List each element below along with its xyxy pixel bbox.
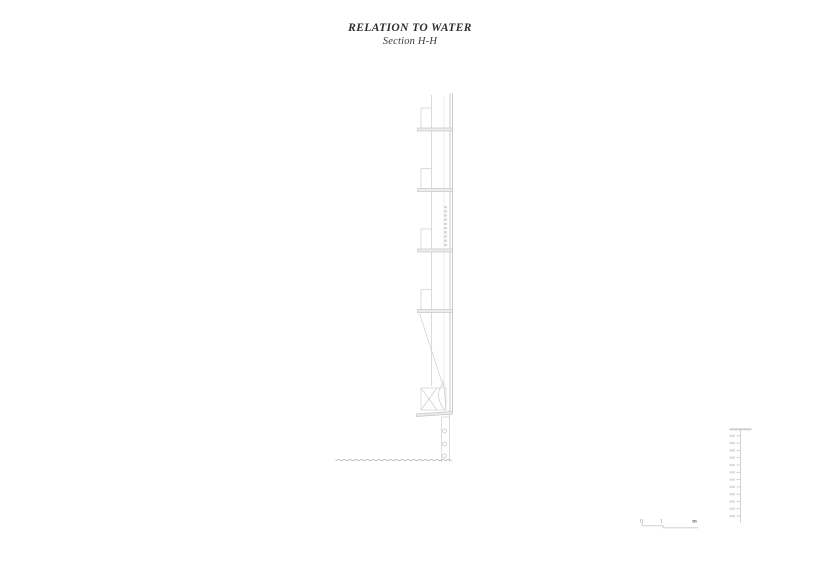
- ruler-tick-label-illegible: [730, 442, 736, 444]
- water-line: [336, 460, 452, 461]
- annotation-glyph: [444, 231, 447, 233]
- elevation-ruler: [730, 428, 752, 523]
- floor-slab: [418, 249, 453, 252]
- annotation-glyph: [444, 214, 447, 216]
- balcony-module: [418, 169, 453, 192]
- annotation-glyph: [444, 219, 447, 221]
- ruler-tick-label-illegible: [730, 508, 736, 510]
- ruler-tick-label-illegible: [730, 515, 736, 517]
- floor-slab: [418, 310, 453, 313]
- base-plate: [417, 412, 453, 417]
- drawing-sheet: RELATION TO WATER Section H-H: [0, 0, 820, 580]
- annotation-glyph: [444, 235, 447, 237]
- annotation-glyph: [444, 206, 447, 208]
- ruler-tick-label-illegible: [730, 479, 736, 481]
- illegible-vertical-annotation: [444, 206, 447, 246]
- ruler-tick-label-illegible: [730, 464, 736, 466]
- ruler-tick-label-illegible: [730, 457, 736, 459]
- pile-pin: [443, 429, 447, 433]
- balcony-modules: [418, 108, 453, 313]
- tower-walls: [432, 94, 453, 413]
- floor-slab: [418, 189, 453, 192]
- balcony-module: [418, 290, 453, 313]
- ruler-tick-label-illegible: [730, 449, 736, 451]
- ruler-tick-label-illegible: [730, 471, 736, 473]
- base-truss: [417, 380, 453, 417]
- ruler-tick-label-illegible: [730, 493, 736, 495]
- scale-label-zero: 0: [640, 519, 643, 525]
- annotation-glyph: [444, 244, 447, 246]
- scale-label-one: 1: [660, 519, 663, 525]
- mooring-pile: [442, 414, 450, 462]
- annotation-glyph: [444, 223, 447, 225]
- balcony-module: [418, 108, 453, 131]
- annotation-glyph: [444, 240, 447, 242]
- annotation-glyph: [444, 227, 447, 229]
- floor-slab: [418, 128, 453, 131]
- balcony-module: [418, 229, 453, 252]
- scale-bar: 0 1 m: [640, 519, 698, 528]
- ruler-tick-label-illegible: [730, 500, 736, 502]
- pile-pin: [443, 454, 447, 458]
- ruler-tick-label-illegible: [730, 435, 736, 437]
- annotation-glyph: [444, 210, 447, 212]
- pile-pin: [443, 442, 447, 446]
- ruler-tick-label-illegible: [730, 486, 736, 488]
- scale-label-unit: m: [692, 519, 697, 525]
- section-drawing: 0 1 m: [0, 0, 820, 580]
